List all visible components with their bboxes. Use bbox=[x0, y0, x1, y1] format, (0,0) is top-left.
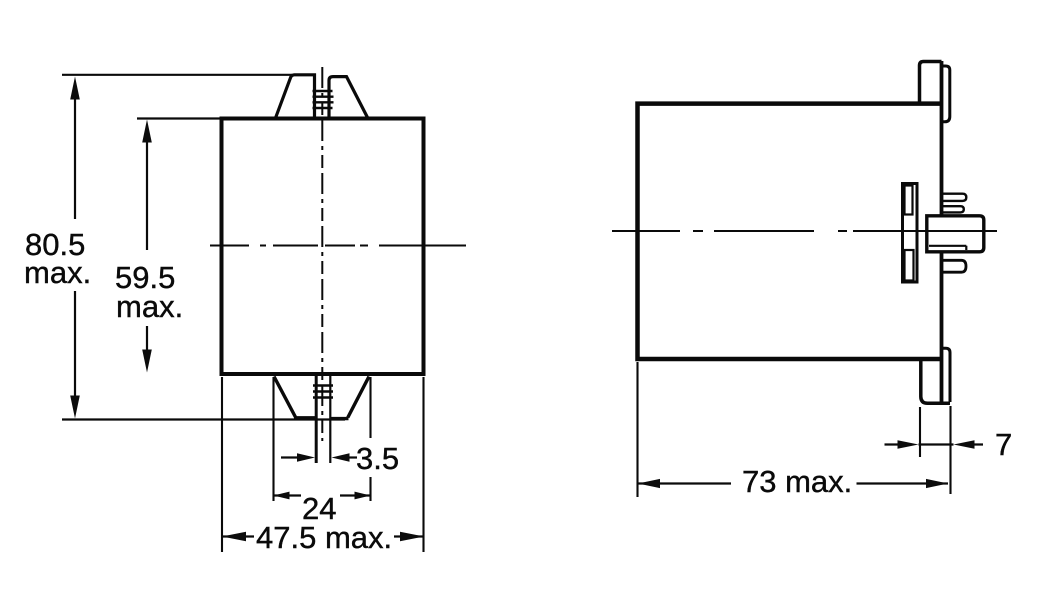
svg-text:73 max.: 73 max. bbox=[742, 464, 852, 499]
svg-text:47.5 max.: 47.5 max. bbox=[256, 520, 392, 555]
svg-text:max.: max. bbox=[116, 289, 183, 324]
svg-text:7: 7 bbox=[995, 427, 1012, 462]
svg-text:3.5: 3.5 bbox=[356, 441, 399, 476]
svg-text:max.: max. bbox=[24, 255, 91, 290]
